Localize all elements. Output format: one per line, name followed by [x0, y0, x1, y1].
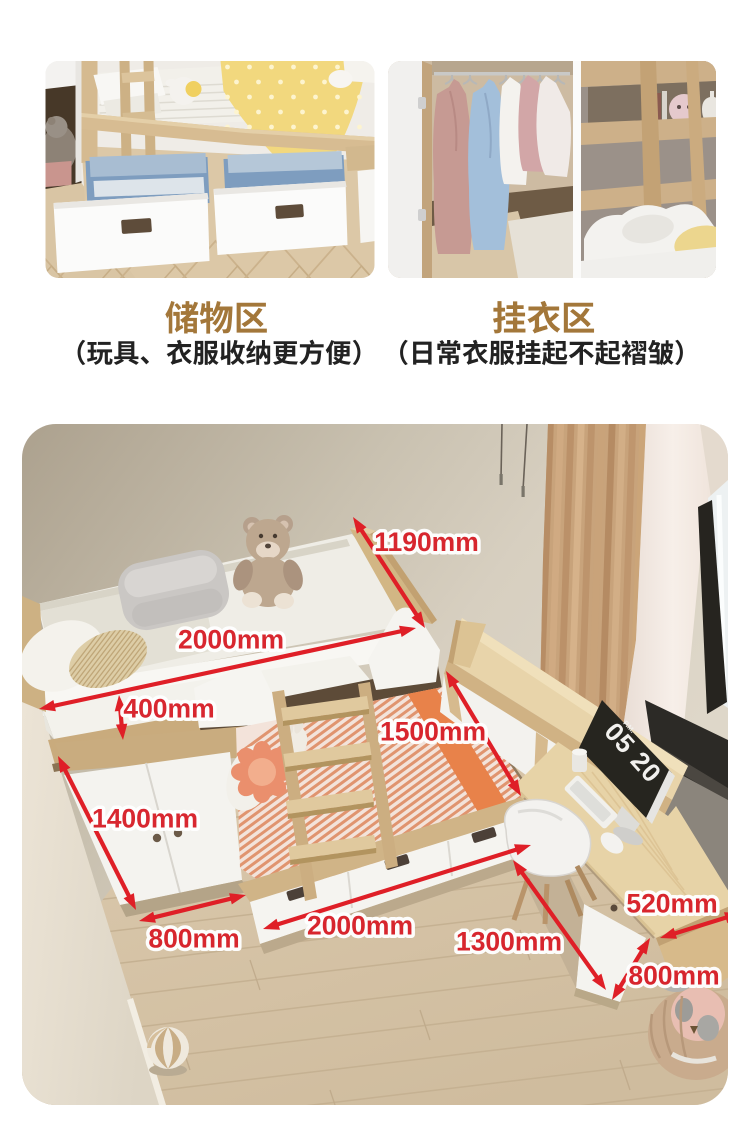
svg-text:400mm: 400mm	[123, 693, 214, 723]
svg-text:1300mm: 1300mm	[456, 926, 562, 956]
svg-text:800mm: 800mm	[148, 923, 239, 953]
svg-text:1400mm: 1400mm	[92, 803, 198, 833]
svg-text:2000mm: 2000mm	[178, 624, 284, 654]
svg-text:2000mm: 2000mm	[307, 910, 413, 940]
svg-text:1500mm: 1500mm	[380, 716, 486, 746]
svg-text:1190mm: 1190mm	[374, 527, 479, 557]
svg-text:520mm: 520mm	[626, 888, 717, 918]
svg-text:800mm: 800mm	[628, 960, 719, 990]
